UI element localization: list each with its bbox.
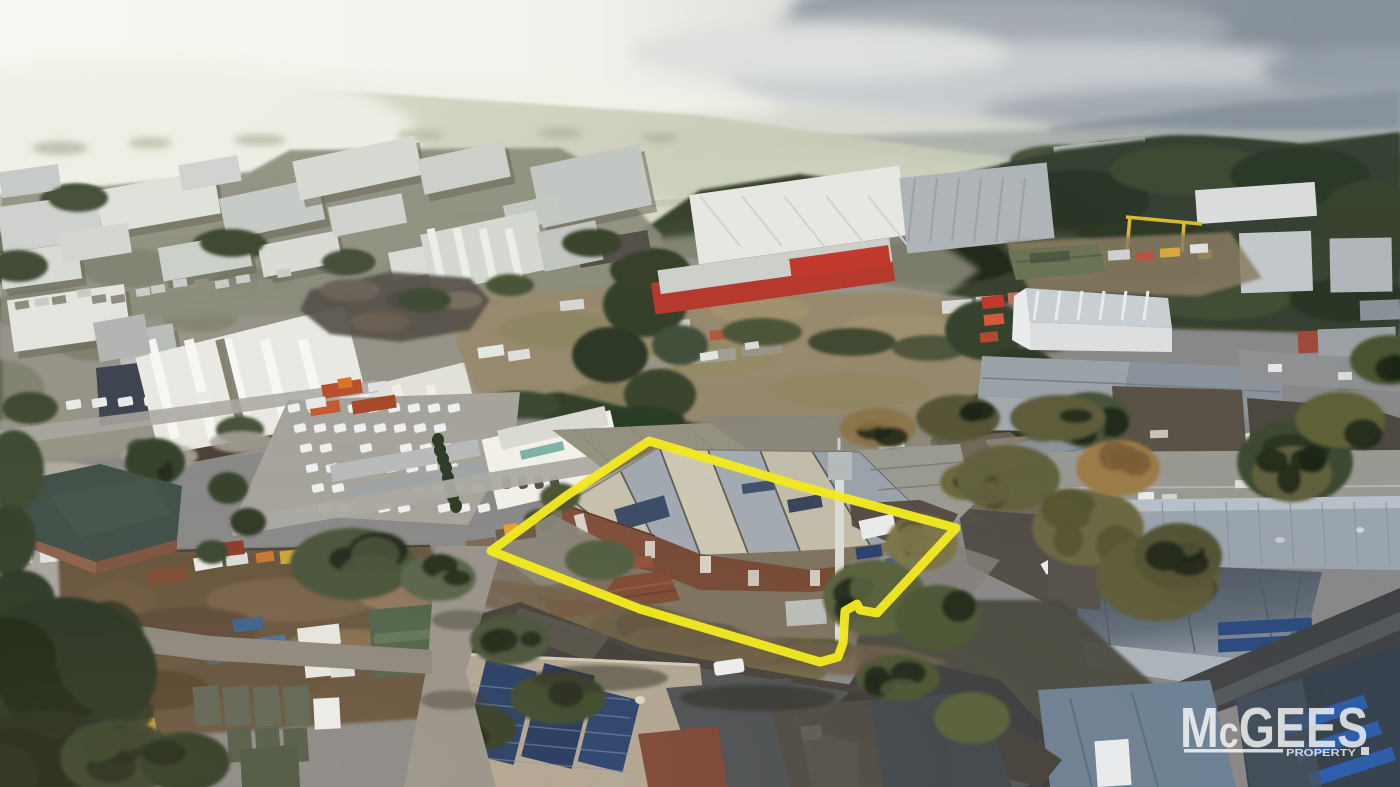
svg-text:PROPERTY: PROPERTY: [1286, 747, 1356, 759]
